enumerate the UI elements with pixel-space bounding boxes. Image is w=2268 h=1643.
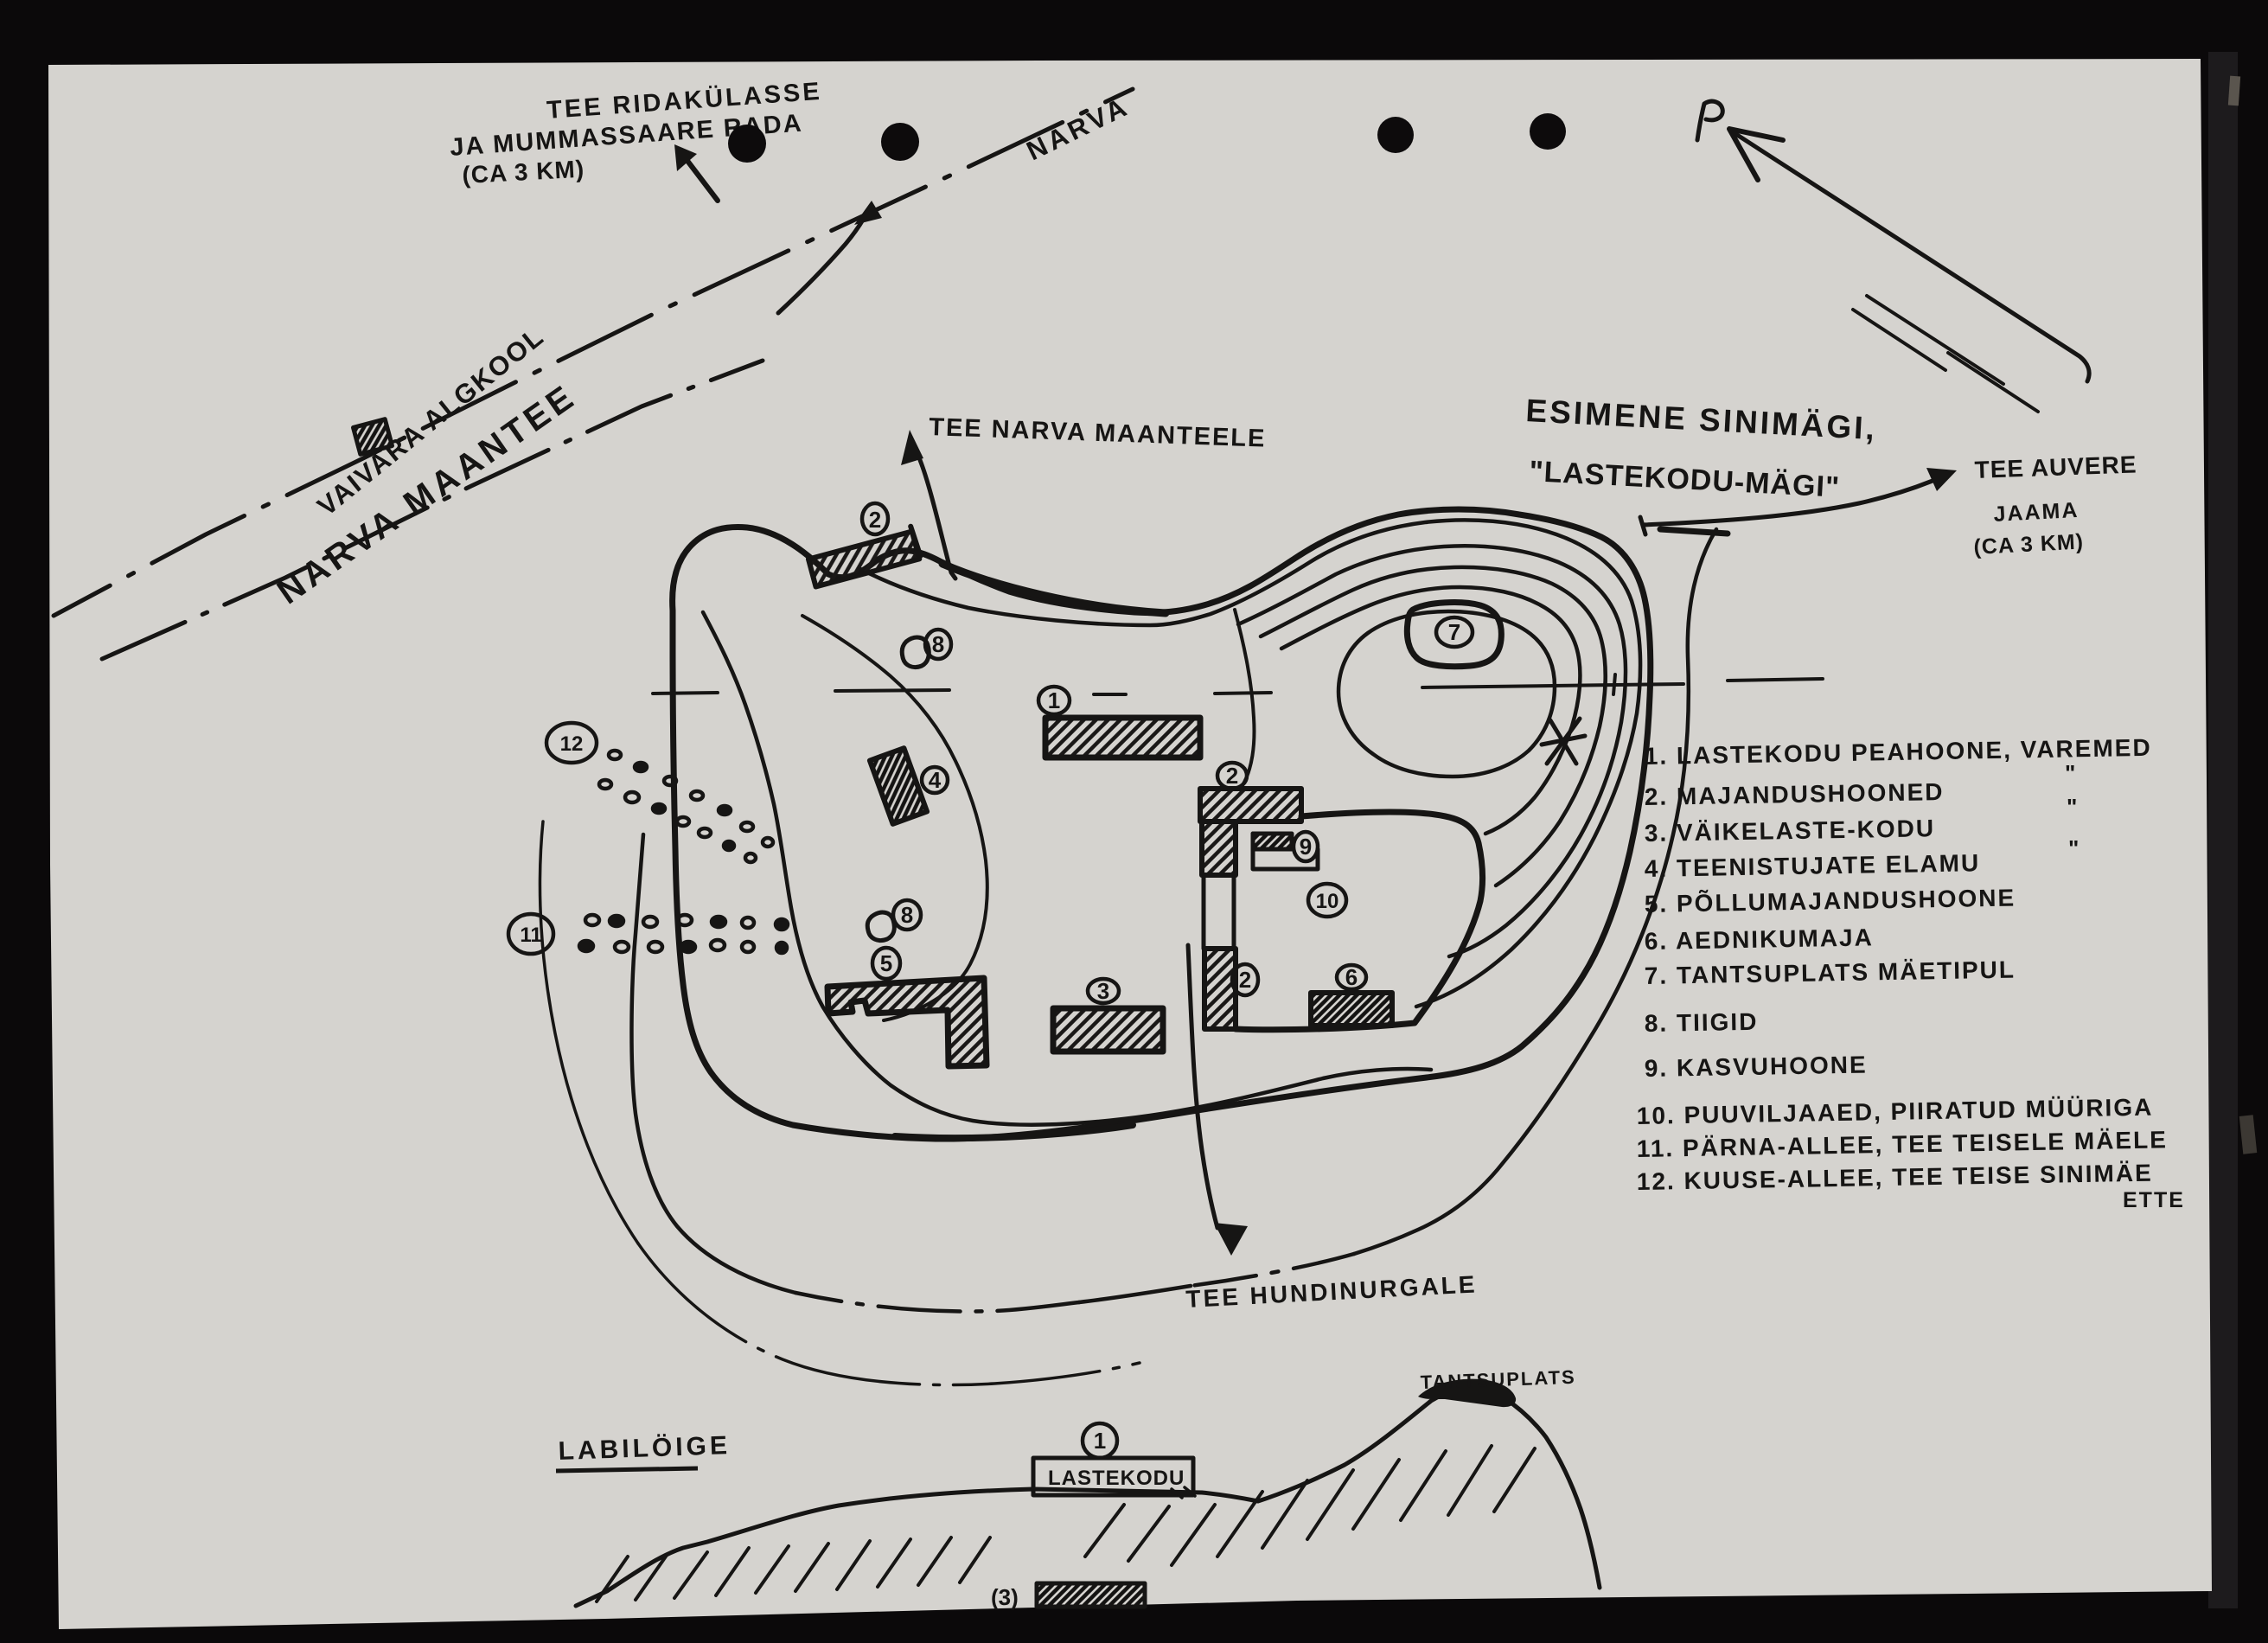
svg-text:2: 2 [1226, 763, 1238, 789]
svg-text:6. AEDNIKUMAJA: 6. AEDNIKUMAJA [1645, 924, 1875, 955]
svg-text:10: 10 [1316, 890, 1339, 913]
svg-text:": " [2068, 835, 2079, 861]
svg-text:8. TIIGID: 8. TIIGID [1645, 1008, 1759, 1037]
svg-text:12: 12 [560, 732, 584, 756]
svg-text:5: 5 [880, 950, 892, 976]
svg-text:LABILÖIGE: LABILÖIGE [558, 1431, 731, 1466]
svg-text:11: 11 [520, 924, 541, 947]
svg-text:7: 7 [1448, 619, 1460, 645]
svg-text:2: 2 [1239, 967, 1251, 993]
svg-text:1: 1 [1048, 687, 1060, 713]
svg-text:3. VÄIKELASTE-KODU: 3. VÄIKELASTE-KODU [1645, 815, 1936, 847]
svg-text:(3): (3) [991, 1584, 1019, 1610]
svg-text:ETTE: ETTE [2123, 1188, 2185, 1212]
svg-text:9: 9 [1300, 834, 1312, 860]
svg-text:2: 2 [869, 507, 881, 533]
svg-text:8: 8 [901, 902, 913, 928]
svg-text:TEE AUVERE: TEE AUVERE [1974, 451, 2137, 483]
svg-text:8: 8 [932, 631, 944, 657]
svg-text:": " [2067, 794, 2077, 820]
svg-text:4: 4 [929, 767, 942, 793]
svg-text:3: 3 [1097, 978, 1109, 1004]
svg-text:1: 1 [1094, 1428, 1106, 1454]
svg-text:6: 6 [1345, 964, 1358, 990]
svg-text:": " [2065, 760, 2075, 786]
svg-text:LASTEKODU: LASTEKODU [1048, 1467, 1185, 1490]
svg-text:2. MAJANDUSHOONED: 2. MAJANDUSHOONED [1645, 778, 1945, 810]
svg-text:9. KASVUHOONE: 9. KASVUHOONE [1645, 1052, 1868, 1082]
svg-text:JAAMA: JAAMA [1993, 498, 2080, 527]
